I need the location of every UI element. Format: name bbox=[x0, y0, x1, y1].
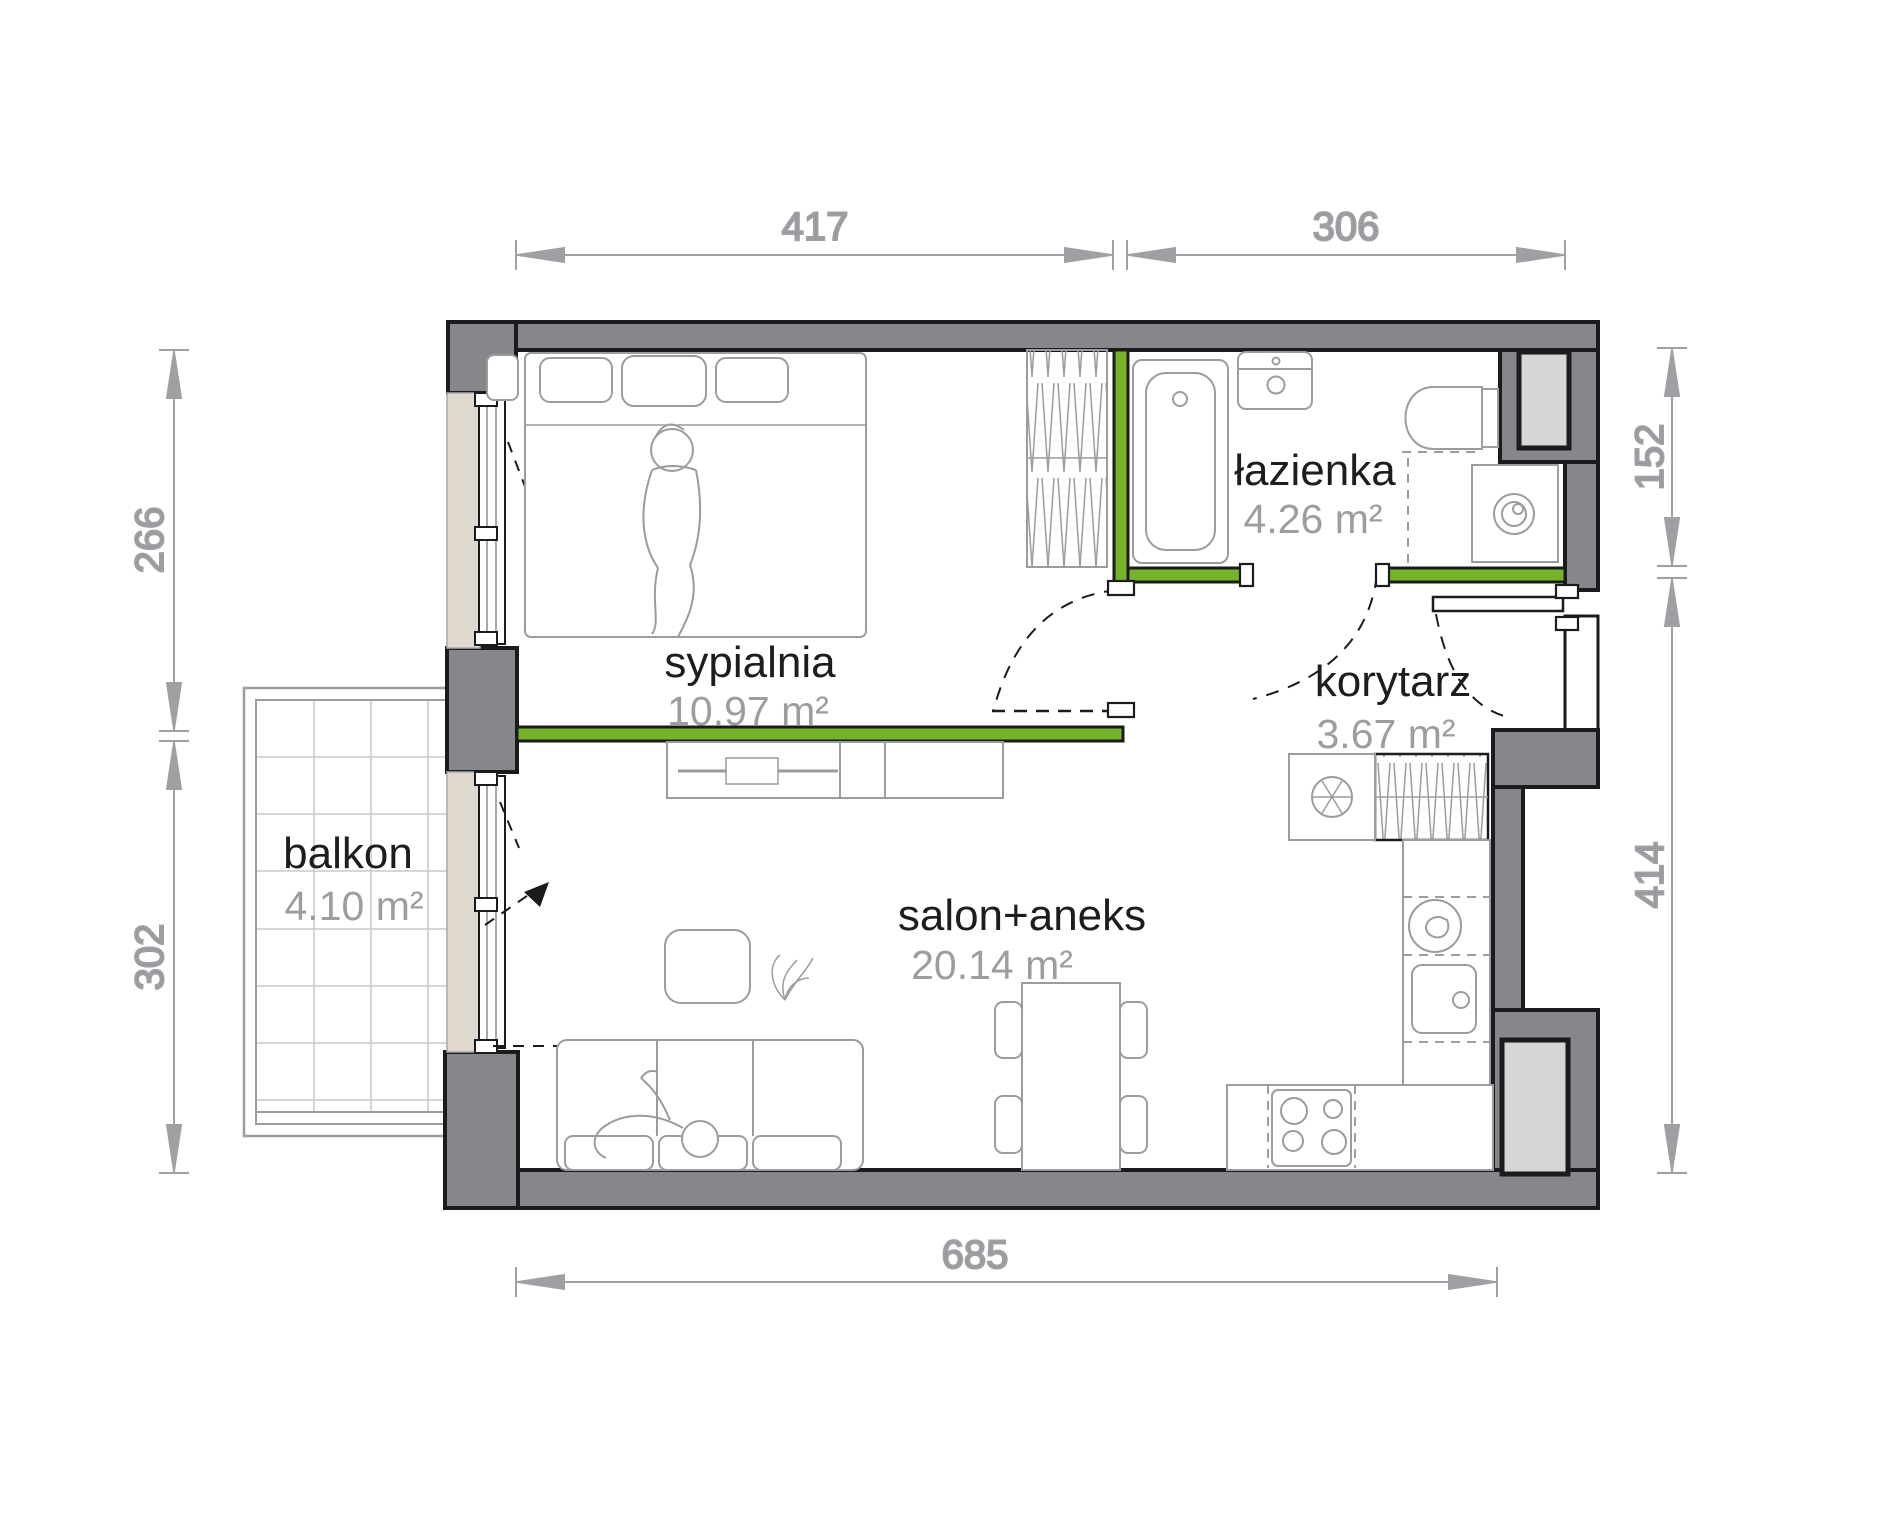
wall-right-step-block bbox=[1493, 730, 1598, 787]
dim-left-302: 302 bbox=[128, 741, 189, 1173]
chair bbox=[995, 1096, 1022, 1153]
dim-label-302: 302 bbox=[128, 924, 172, 991]
dim-label-417: 417 bbox=[782, 205, 849, 249]
dining-set bbox=[995, 983, 1147, 1170]
green-wall-bath-right bbox=[1388, 568, 1565, 582]
plant-decor bbox=[772, 955, 813, 1000]
wall-bottom bbox=[445, 1170, 1598, 1208]
kitchen-counter-bottom bbox=[1227, 1085, 1493, 1170]
pillow bbox=[716, 358, 788, 402]
kitchen-sink-square bbox=[1412, 965, 1476, 1033]
tv-cabinet bbox=[667, 742, 1003, 798]
label-salon: salon+aneks bbox=[898, 891, 1146, 940]
green-wall-bath-left bbox=[1128, 568, 1242, 582]
balcony-door-arrow bbox=[524, 882, 549, 907]
washing-machine bbox=[1472, 465, 1558, 562]
bedroom-door-swing bbox=[993, 590, 1117, 712]
wall-right-entrance-side bbox=[1565, 616, 1598, 730]
dim-right-152: 152 bbox=[1628, 348, 1687, 566]
wall-left-pillar bbox=[447, 648, 517, 772]
dim-left-266: 266 bbox=[128, 350, 189, 731]
balcony-door-window bbox=[447, 772, 505, 1053]
label-sypialnia: sypialnia bbox=[664, 638, 836, 687]
shaft-top-right bbox=[1519, 352, 1569, 448]
bathtub bbox=[1133, 360, 1228, 563]
floorplan-drawing: 417 306 266 302 bbox=[0, 0, 1900, 1520]
dim-label-414: 414 bbox=[1628, 842, 1672, 909]
bathroom-sink bbox=[1238, 352, 1312, 409]
area-korytarz: 3.67 m² bbox=[1317, 711, 1456, 757]
dim-top-417: 417 bbox=[516, 205, 1113, 270]
chair bbox=[1120, 1002, 1147, 1058]
area-lazienka: 4.26 m² bbox=[1244, 496, 1383, 542]
chair bbox=[995, 1002, 1022, 1058]
entrance-door-leaf bbox=[1433, 597, 1563, 611]
chair bbox=[1120, 1096, 1147, 1153]
stove bbox=[1268, 1085, 1355, 1168]
area-balkon: 4.10 m² bbox=[285, 883, 424, 929]
nightstand bbox=[487, 355, 518, 400]
wall-top bbox=[516, 322, 1598, 350]
label-korytarz: korytarz bbox=[1315, 657, 1471, 706]
dim-label-152: 152 bbox=[1628, 424, 1672, 491]
coffee-table bbox=[665, 930, 750, 1003]
dim-label-685: 685 bbox=[942, 1233, 1009, 1277]
dim-label-306: 306 bbox=[1313, 205, 1380, 249]
fridge bbox=[1289, 754, 1375, 840]
dining-table bbox=[1022, 983, 1120, 1170]
bedroom-furniture bbox=[487, 353, 866, 637]
wall-right-column bbox=[1493, 787, 1523, 1010]
label-lazienka: łazienka bbox=[1234, 446, 1396, 495]
area-salon: 20.14 m² bbox=[911, 942, 1073, 988]
dim-top-306: 306 bbox=[1127, 205, 1565, 270]
bedroom-window bbox=[447, 393, 505, 648]
label-balkon: balkon bbox=[283, 829, 413, 878]
green-wall-wardrobe-bath bbox=[1114, 350, 1128, 583]
pillow bbox=[622, 356, 706, 406]
floorplan-page: 417 306 266 302 bbox=[0, 0, 1900, 1520]
dim-label-266: 266 bbox=[128, 507, 172, 574]
dim-bottom-685: 685 bbox=[516, 1233, 1497, 1297]
area-sypialnia: 10.97 m² bbox=[667, 688, 829, 734]
shaft-bottom-right bbox=[1502, 1040, 1568, 1174]
dim-right-414: 414 bbox=[1628, 578, 1687, 1173]
pillow bbox=[540, 358, 612, 402]
wall-bottom-left-block bbox=[445, 1052, 518, 1208]
